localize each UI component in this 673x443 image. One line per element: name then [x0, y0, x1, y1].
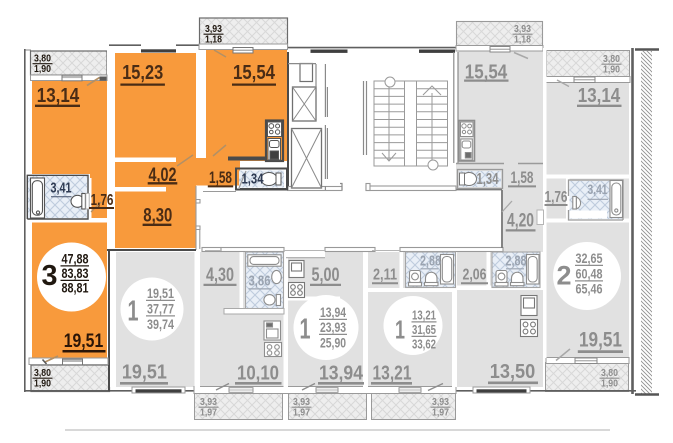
svg-text:2,88: 2,88: [420, 254, 441, 270]
svg-text:32,65: 32,65: [576, 250, 603, 266]
svg-text:1,90: 1,90: [34, 64, 51, 75]
svg-text:1,90: 1,90: [601, 379, 618, 390]
svg-text:3,93: 3,93: [293, 397, 310, 408]
svg-text:3: 3: [42, 260, 58, 292]
svg-text:1: 1: [300, 314, 311, 346]
svg-text:1: 1: [395, 315, 405, 345]
svg-text:37,77: 37,77: [147, 301, 174, 317]
svg-text:10,10: 10,10: [237, 363, 279, 385]
svg-text:2,11: 2,11: [373, 267, 397, 284]
svg-text:1,76: 1,76: [91, 192, 114, 209]
svg-text:3,86: 3,86: [249, 273, 271, 290]
svg-text:3,41: 3,41: [588, 181, 608, 197]
svg-text:3,93: 3,93: [200, 397, 217, 408]
svg-text:15,54: 15,54: [233, 62, 276, 84]
svg-text:19,51: 19,51: [579, 329, 622, 352]
svg-text:13,94: 13,94: [320, 304, 346, 320]
svg-text:39,74: 39,74: [147, 316, 174, 332]
svg-text:3,80: 3,80: [34, 368, 51, 379]
svg-text:3,80: 3,80: [34, 54, 51, 65]
svg-text:13,14: 13,14: [578, 85, 621, 107]
svg-text:13,94: 13,94: [319, 363, 364, 385]
svg-text:13,21: 13,21: [412, 308, 436, 323]
svg-text:3,80: 3,80: [603, 54, 620, 65]
svg-text:1,97: 1,97: [432, 408, 449, 419]
svg-text:8,30: 8,30: [143, 206, 172, 227]
svg-text:1,97: 1,97: [293, 408, 310, 419]
svg-text:88,81: 88,81: [62, 279, 89, 295]
svg-text:15,23: 15,23: [122, 62, 163, 84]
svg-text:19,51: 19,51: [147, 285, 174, 301]
svg-text:31,65: 31,65: [412, 322, 436, 337]
svg-text:25,90: 25,90: [320, 335, 346, 351]
svg-text:3,93: 3,93: [205, 24, 222, 35]
svg-text:1: 1: [128, 296, 139, 328]
svg-text:1,97: 1,97: [200, 408, 217, 419]
svg-text:13,50: 13,50: [490, 361, 536, 383]
svg-text:1,34: 1,34: [242, 171, 264, 188]
svg-text:1,76: 1,76: [545, 189, 568, 206]
svg-text:4,20: 4,20: [507, 211, 534, 232]
svg-text:13,21: 13,21: [373, 363, 412, 385]
svg-text:1,18: 1,18: [514, 35, 531, 46]
svg-text:4,30: 4,30: [206, 265, 234, 286]
svg-text:23,93: 23,93: [320, 319, 346, 335]
svg-text:2,88: 2,88: [506, 254, 527, 270]
svg-text:3,41: 3,41: [51, 181, 72, 197]
svg-text:5,00: 5,00: [312, 265, 340, 286]
svg-text:1,58: 1,58: [511, 168, 534, 187]
svg-text:2: 2: [557, 261, 572, 291]
svg-text:3,80: 3,80: [601, 368, 618, 379]
svg-text:3,93: 3,93: [514, 24, 531, 35]
svg-text:65,46: 65,46: [576, 281, 603, 297]
svg-text:19,51: 19,51: [64, 330, 104, 352]
svg-text:3,93: 3,93: [432, 397, 449, 408]
svg-text:1,90: 1,90: [603, 65, 620, 76]
svg-text:33,62: 33,62: [412, 337, 436, 352]
svg-text:13,14: 13,14: [37, 85, 80, 107]
svg-text:1,34: 1,34: [477, 171, 499, 188]
svg-text:60,48: 60,48: [576, 266, 603, 282]
svg-text:1,90: 1,90: [34, 379, 51, 390]
svg-text:2,06: 2,06: [463, 267, 487, 284]
svg-text:19,51: 19,51: [122, 362, 167, 384]
svg-text:1,58: 1,58: [209, 168, 232, 187]
